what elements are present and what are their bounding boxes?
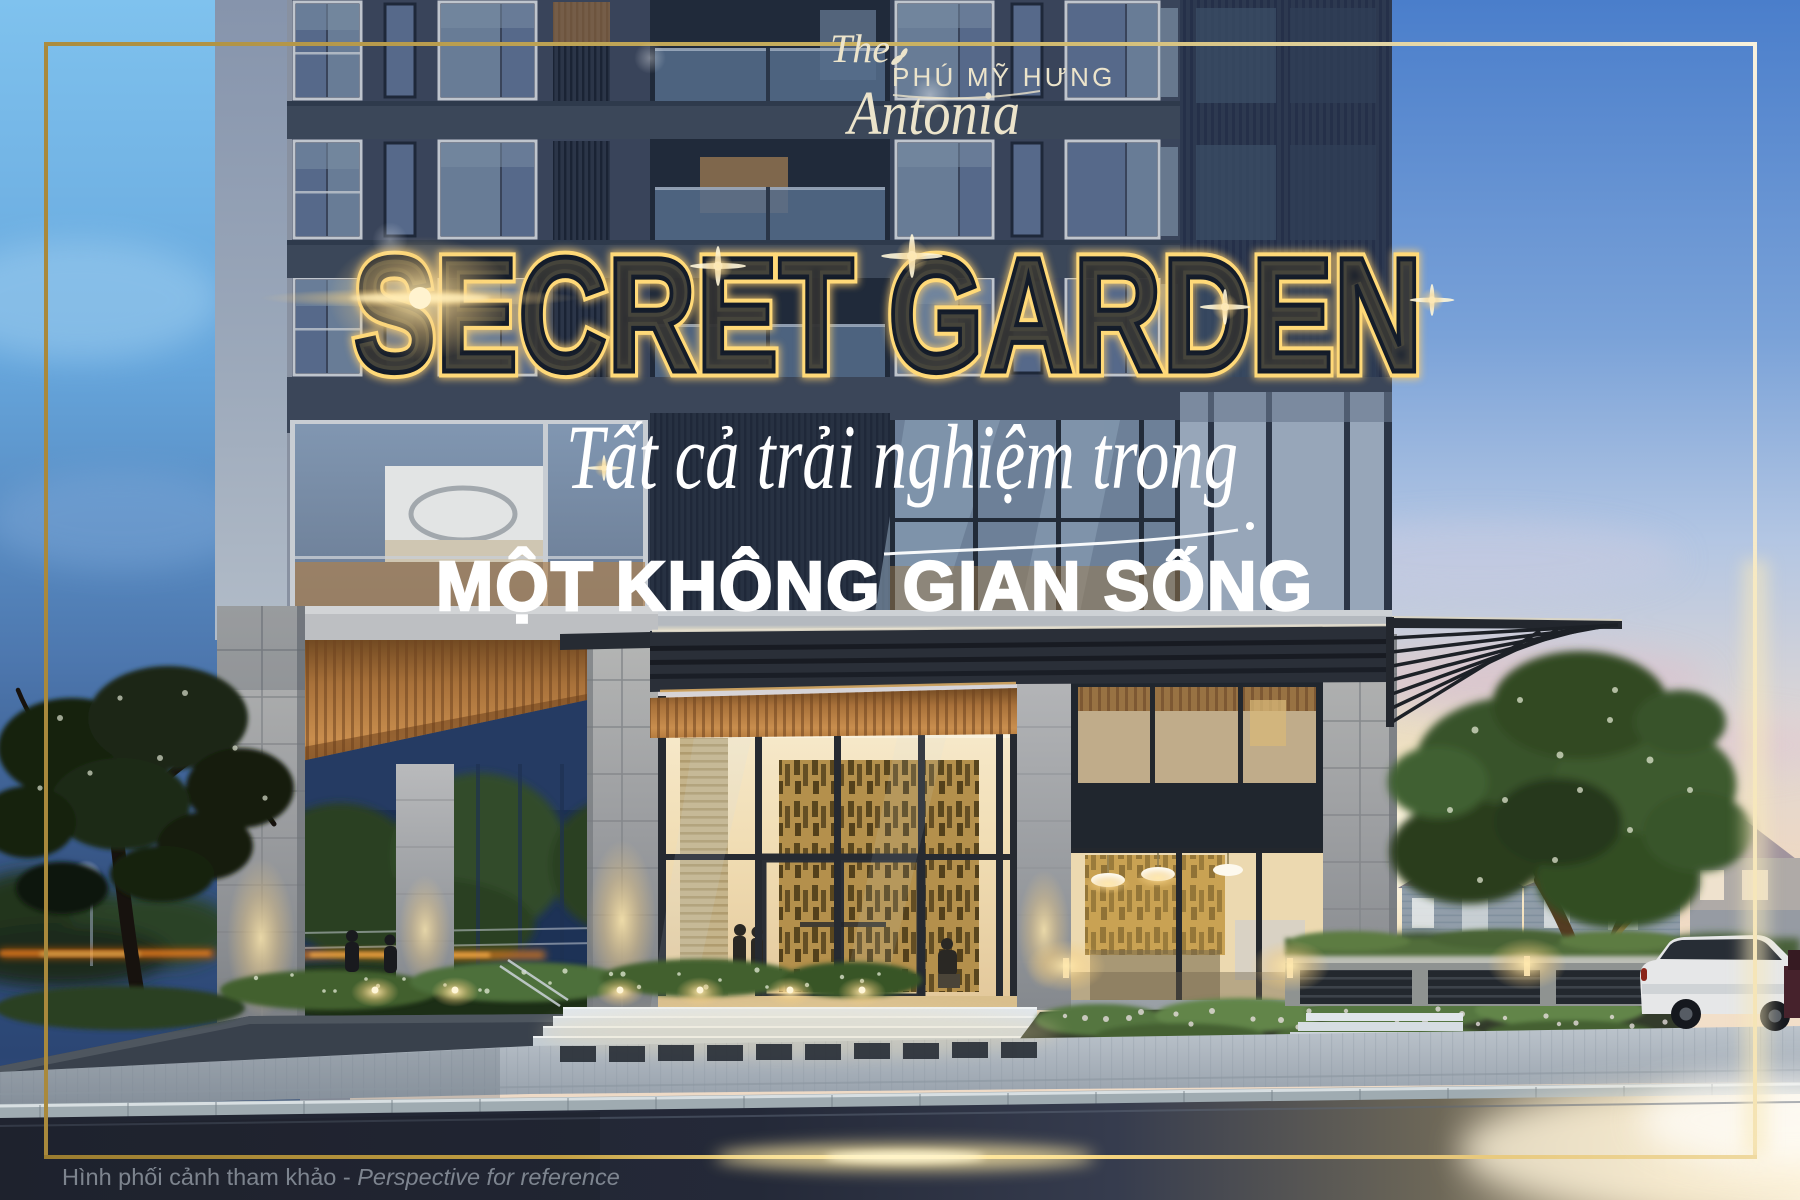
svg-text:PHÚ MỸ HƯNG: PHÚ MỸ HƯNG [892,62,1116,92]
svg-text:Hình phối cảnh tham khảo - Per: Hình phối cảnh tham khảo - Perspective f… [62,1164,620,1190]
svg-text:SECRET GARDEN: SECRET GARDEN [354,223,1423,406]
svg-text:MỘT KHÔNG GIAN SỐNG: MỘT KHÔNG GIAN SỐNG [436,546,1314,625]
svg-text:The: The [830,26,890,71]
svg-text:Tất cả trải nghiệm trong: Tất cả trải nghiệm trong [566,406,1238,508]
